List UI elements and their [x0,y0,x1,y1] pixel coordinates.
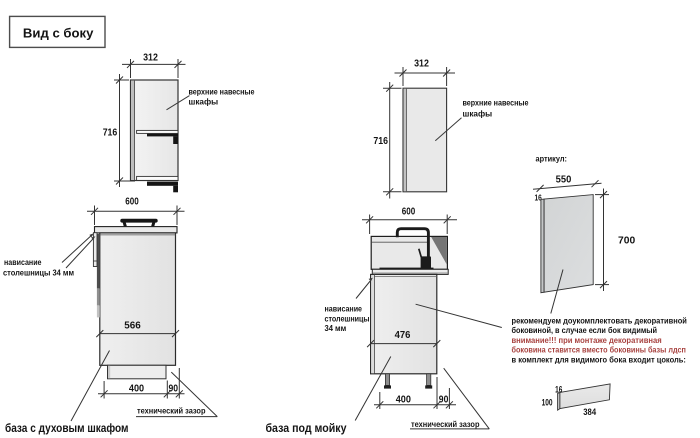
svg-text:100: 100 [542,397,553,408]
svg-text:рекомендуем доукомплектовать д: рекомендуем доукомплектовать декоративно… [512,316,687,325]
svg-text:верхние навесные: верхние навесные [189,88,255,97]
svg-text:шкафы: шкафы [463,110,493,119]
svg-text:550: 550 [556,174,572,186]
svg-text:312: 312 [143,51,158,63]
svg-text:нависание: нависание [325,305,363,314]
svg-text:боковиной, в случае если бок в: боковиной, в случае если бок видимый [512,325,658,335]
svg-text:384: 384 [583,407,596,418]
svg-text:716: 716 [103,126,118,138]
svg-text:34 мм: 34 мм [325,324,347,333]
svg-text:шкафы: шкафы [189,98,219,107]
svg-text:700: 700 [618,235,635,247]
svg-text:90: 90 [439,394,449,406]
svg-text:600: 600 [125,196,139,208]
svg-text:верхние навесные: верхние навесные [463,99,529,108]
svg-text:столешницы 34 мм: столешницы 34 мм [3,269,74,278]
svg-text:боковина ставится вместо боков: боковина ставится вместо боковины базы л… [512,345,686,355]
svg-text:столешницы: столешницы [325,315,370,324]
svg-text:600: 600 [402,206,416,218]
svg-text:артикул:: артикул: [536,154,568,164]
svg-text:716: 716 [373,135,388,147]
svg-text:технический зазор: технический зазор [137,407,206,416]
svg-text:база с духовым шкафом: база с духовым шкафом [5,423,129,435]
svg-text:312: 312 [414,58,429,70]
svg-text:технический зазор: технический зазор [411,420,480,429]
svg-text:400: 400 [129,383,144,395]
svg-text:476: 476 [395,329,411,341]
svg-text:нависание: нависание [4,258,42,267]
svg-text:16: 16 [555,384,562,395]
svg-text:90: 90 [169,383,179,395]
svg-text:внимание!!! при монтаже декора: внимание!!! при монтаже декоративная [512,336,662,345]
svg-text:в комплект для видимого бока в: в комплект для видимого бока входит цоко… [512,355,686,365]
svg-text:база под мойку: база под мойку [266,423,348,435]
svg-text:400: 400 [396,394,411,406]
svg-text:Вид с боку: Вид с боку [23,25,94,40]
svg-text:566: 566 [124,319,141,331]
